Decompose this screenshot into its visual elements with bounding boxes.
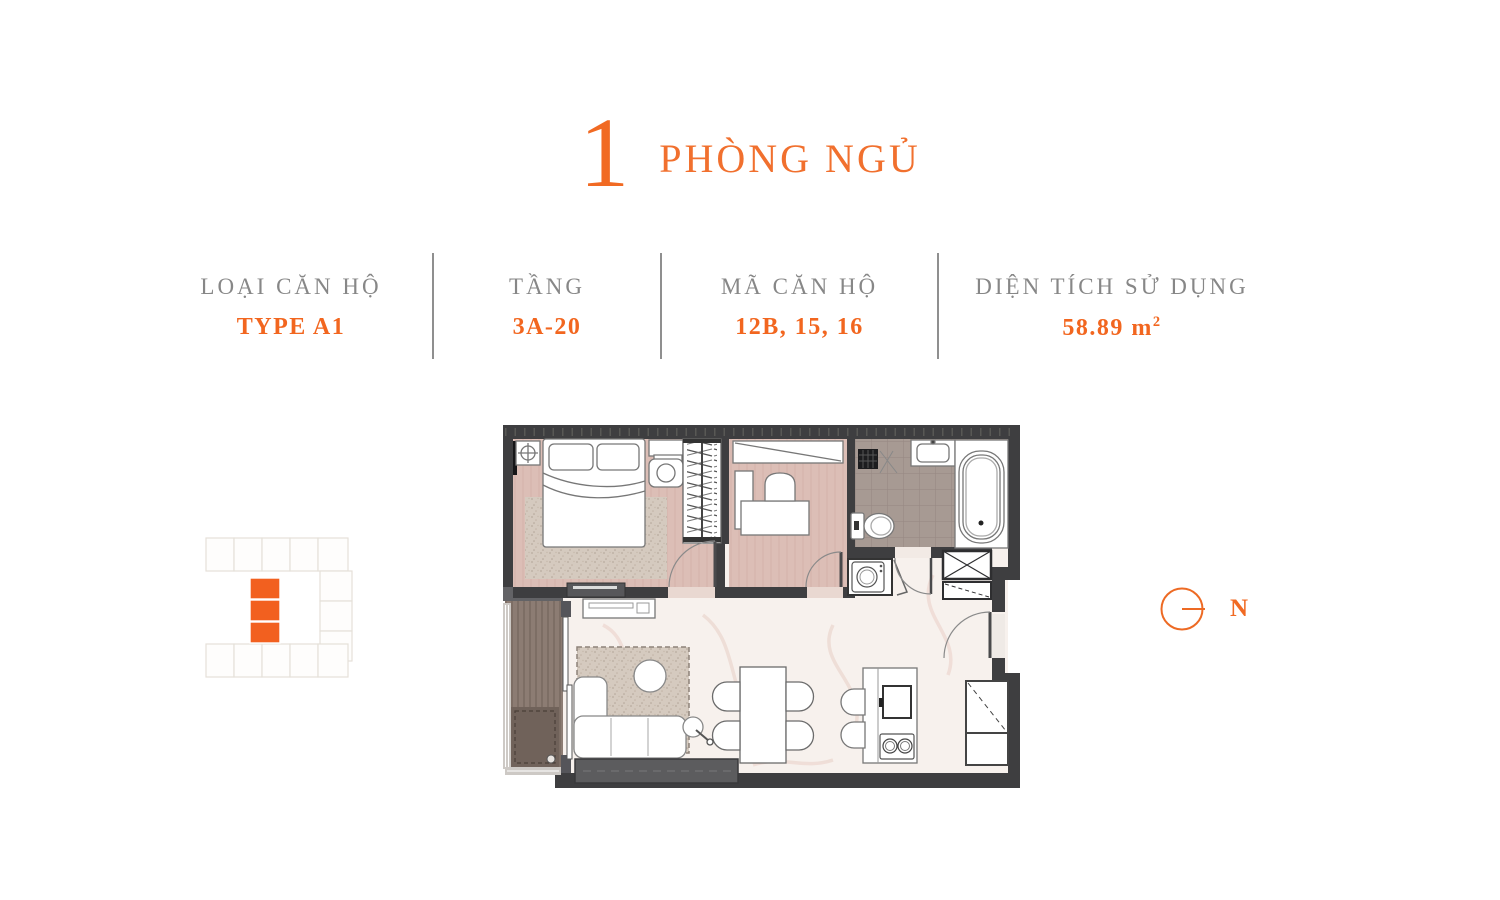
building-locator-diagram xyxy=(204,532,364,684)
info-usable-area: DIỆN TÍCH SỬ DỤNG 58.89 m2 xyxy=(937,253,1285,359)
island-sink xyxy=(883,686,911,718)
locator-highlighted-units xyxy=(250,578,280,643)
bathtub xyxy=(955,440,1008,548)
dining-chair xyxy=(786,682,814,711)
page-title-text: PHÒNG NGỦ xyxy=(659,135,920,182)
refrigerator xyxy=(966,681,1008,765)
toilet xyxy=(851,513,894,539)
coffee-table xyxy=(634,660,666,692)
info-value: TYPE A1 xyxy=(150,314,432,341)
bathroom-sink xyxy=(911,440,955,466)
dining-chair xyxy=(713,721,741,750)
ac-ledge xyxy=(575,759,738,783)
info-floor: TẦNG 3A-20 xyxy=(432,253,660,359)
info-label: TẦNG xyxy=(434,274,660,300)
wardrobe xyxy=(683,439,721,543)
page: 1 PHÒNG NGỦ LOẠI CĂN HỘ TYPE A1 TẦNG 3A-… xyxy=(0,0,1500,900)
dining-chair xyxy=(786,721,814,750)
page-title: 1 PHÒNG NGỦ xyxy=(0,112,1500,194)
bedroom-media-unit xyxy=(567,583,625,597)
cooktop xyxy=(880,734,914,759)
info-label: MÃ CĂN HỘ xyxy=(662,274,937,300)
balcony-planter xyxy=(511,707,559,767)
floor-plan xyxy=(503,425,1020,788)
square-meter-sup: 2 xyxy=(1153,314,1162,330)
info-unit-code: MÃ CĂN HỘ 12B, 15, 16 xyxy=(660,253,937,359)
bedroom-count: 1 xyxy=(579,112,629,194)
service-shafts xyxy=(943,551,991,599)
desk xyxy=(741,501,809,535)
unit-info-row: LOẠI CĂN HỘ TYPE A1 TẦNG 3A-20 MÃ CĂN HỘ… xyxy=(150,253,1340,359)
dining-table xyxy=(740,667,786,763)
bed xyxy=(543,439,645,547)
compass-icon xyxy=(1160,586,1206,632)
dining-chair xyxy=(713,682,741,711)
info-label: LOẠI CĂN HỘ xyxy=(150,274,432,300)
info-value: 58.89 m2 xyxy=(939,314,1285,342)
north-label: N xyxy=(1230,595,1249,623)
info-apartment-type: LOẠI CĂN HỘ TYPE A1 xyxy=(150,253,432,359)
info-value: 12B, 15, 16 xyxy=(662,314,937,341)
study-cabinet xyxy=(733,441,843,463)
north-compass: N xyxy=(1160,586,1249,632)
nightstand-lamp xyxy=(649,459,683,487)
desk-chair xyxy=(765,473,795,501)
info-label: DIỆN TÍCH SỬ DỤNG xyxy=(939,274,1285,300)
info-value: 3A-20 xyxy=(434,314,660,341)
nightstand-left xyxy=(516,441,540,465)
